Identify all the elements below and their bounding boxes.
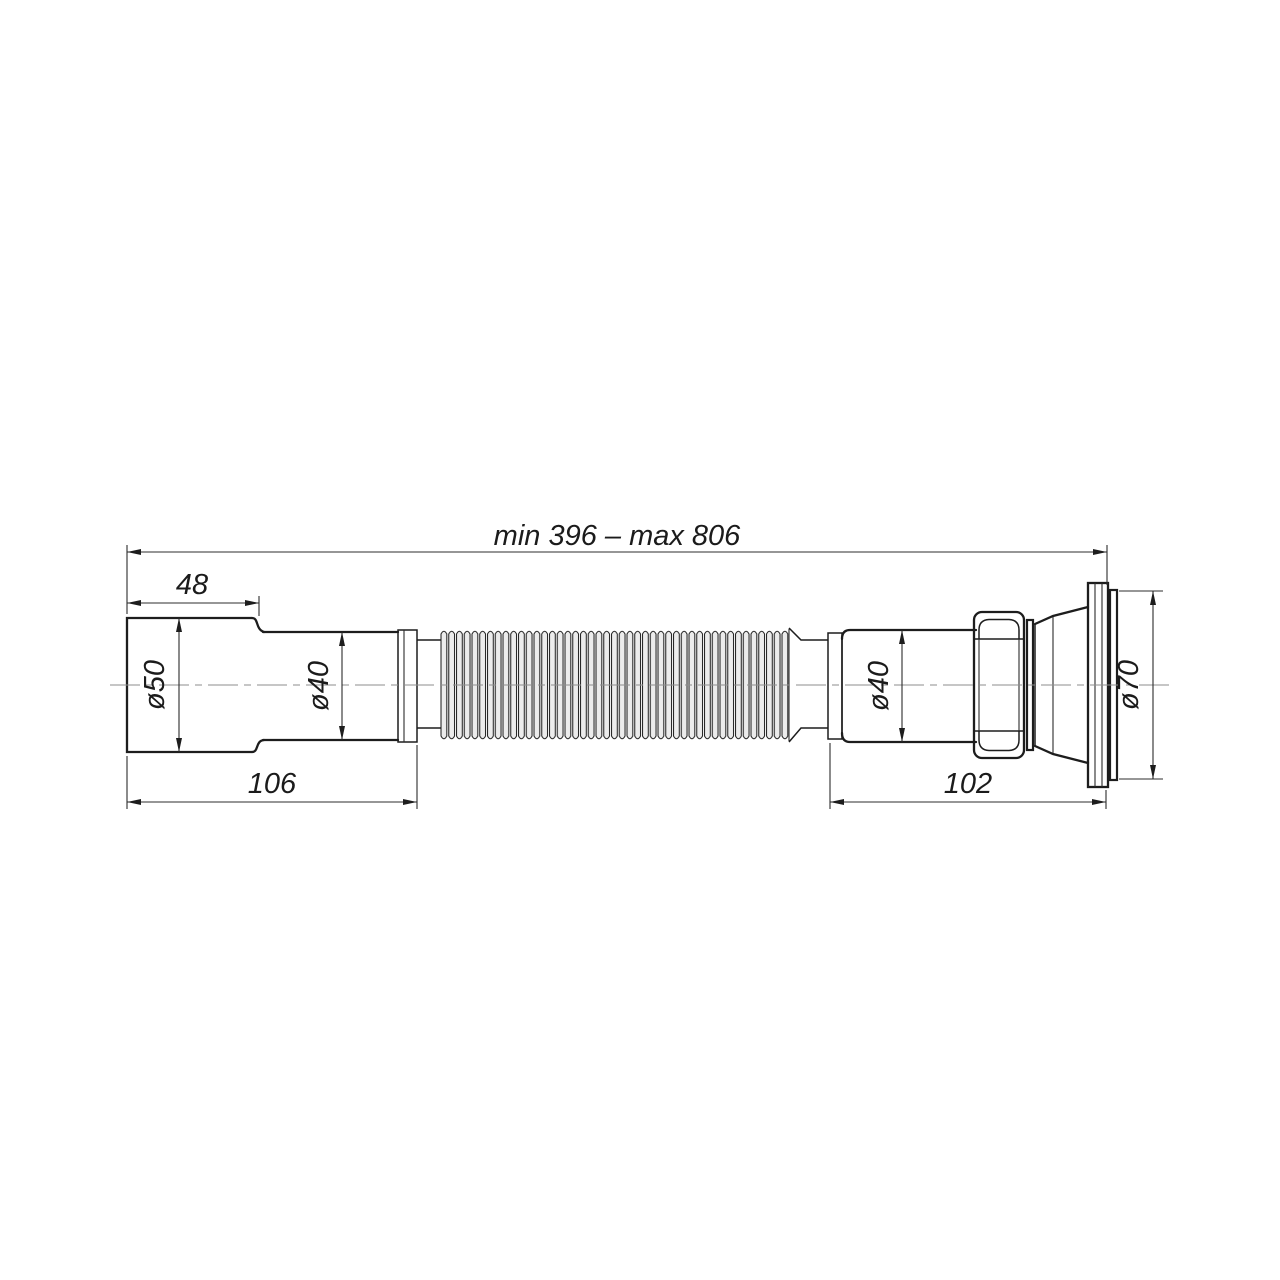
arrowhead-left (127, 799, 141, 805)
nut-top-facet (979, 620, 1019, 640)
arrowhead-left (127, 600, 141, 606)
nut-bottom-facet (979, 731, 1019, 751)
dim-right-tail-length-label: 102 (944, 768, 992, 800)
arrowhead-bottom (1150, 765, 1156, 779)
drawing-page: min 396 – max 806 48 ø50 ø40 106 ø40 (0, 0, 1280, 1280)
left-collar-ring (398, 630, 417, 742)
arrowhead-top (1150, 591, 1156, 605)
socket-step-bottom (252, 740, 264, 752)
right-tube-top (842, 630, 976, 639)
arrowhead-top (339, 632, 345, 646)
dim-inlet-socket-length-label: 48 (176, 569, 208, 601)
right-collar-ring (828, 633, 842, 739)
dim-right-tube-diameter: ø40 (863, 630, 905, 742)
arrowhead-bottom (176, 738, 182, 752)
socket-step-top (252, 618, 264, 632)
arrowhead-bottom (899, 728, 905, 742)
left-collar (398, 630, 417, 742)
dim-left-tail-length-label: 106 (248, 768, 297, 800)
arrowhead-top (176, 618, 182, 632)
right-taper-bottom (789, 728, 828, 742)
dim-outlet-flange-diameter-label: ø70 (1113, 660, 1145, 710)
dim-overall-length: min 396 – max 806 (127, 520, 1107, 614)
left-neck (417, 640, 441, 728)
dim-inlet-diameter-label: ø50 (139, 660, 171, 710)
cone-bottom (1035, 746, 1088, 763)
dim-left-tube-diameter: ø40 (303, 632, 345, 740)
right-collar (828, 633, 842, 739)
arrowhead-right (403, 799, 417, 805)
right-taper-top (789, 628, 828, 640)
dim-left-tube-diameter-label: ø40 (303, 661, 335, 711)
right-tube-bottom (842, 733, 976, 742)
technical-drawing: min 396 – max 806 48 ø50 ø40 106 ø40 (0, 0, 1280, 1280)
dim-overall-length-label: min 396 – max 806 (494, 520, 742, 552)
arrowhead-bottom (339, 726, 345, 740)
dim-right-tube-diameter-label: ø40 (863, 661, 895, 711)
arrowhead-left (830, 799, 844, 805)
cone-top (1035, 607, 1088, 624)
dim-inlet-socket-length: 48 (127, 569, 259, 616)
arrowhead-top (899, 630, 905, 644)
arrowhead-left (127, 549, 141, 555)
arrowhead-right (1092, 799, 1106, 805)
arrowhead-right (1093, 549, 1107, 555)
dim-left-tail-length: 106 (127, 745, 417, 809)
dim-right-tail-length: 102 (830, 743, 1106, 809)
arrowhead-right (245, 600, 259, 606)
